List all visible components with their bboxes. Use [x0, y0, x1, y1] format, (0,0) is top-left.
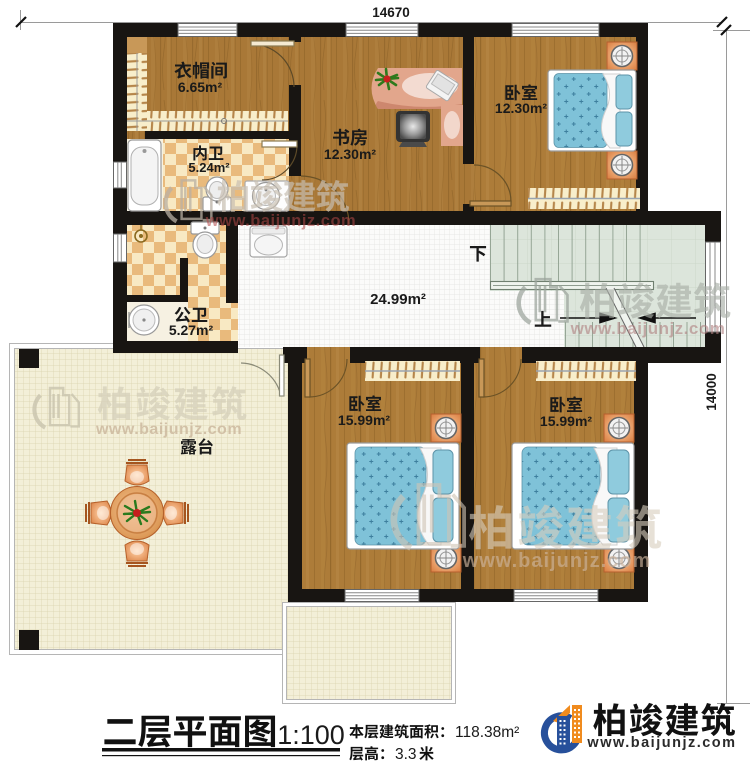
svg-text:www.baijunjz.com: www.baijunjz.com: [95, 421, 242, 438]
svg-text:www.baijunjz.com: www.baijunjz.com: [570, 319, 726, 338]
svg-text:14000: 14000: [704, 373, 719, 411]
svg-text:1:100: 1:100: [277, 720, 345, 750]
svg-text:14670: 14670: [372, 5, 410, 20]
svg-text:www.baijunjz.com: www.baijunjz.com: [586, 735, 736, 751]
svg-text:118.38m²: 118.38m²: [455, 724, 519, 741]
svg-text:15.99m²: 15.99m²: [540, 413, 592, 429]
svg-text:www.baijunjz.com: www.baijunjz.com: [205, 212, 356, 230]
svg-text:24.99m²: 24.99m²: [370, 291, 426, 308]
svg-text:12.30m²: 12.30m²: [324, 146, 376, 162]
svg-text:5.27m²: 5.27m²: [169, 322, 214, 338]
svg-text:www.baijunjz.com: www.baijunjz.com: [462, 550, 652, 572]
svg-text:3.3: 3.3: [395, 746, 417, 763]
svg-text:15.99m²: 15.99m²: [338, 412, 390, 428]
svg-text:12.30m²: 12.30m²: [495, 100, 547, 116]
svg-text:5.24m²: 5.24m²: [188, 160, 230, 175]
svg-text:6.65m²: 6.65m²: [178, 79, 223, 95]
